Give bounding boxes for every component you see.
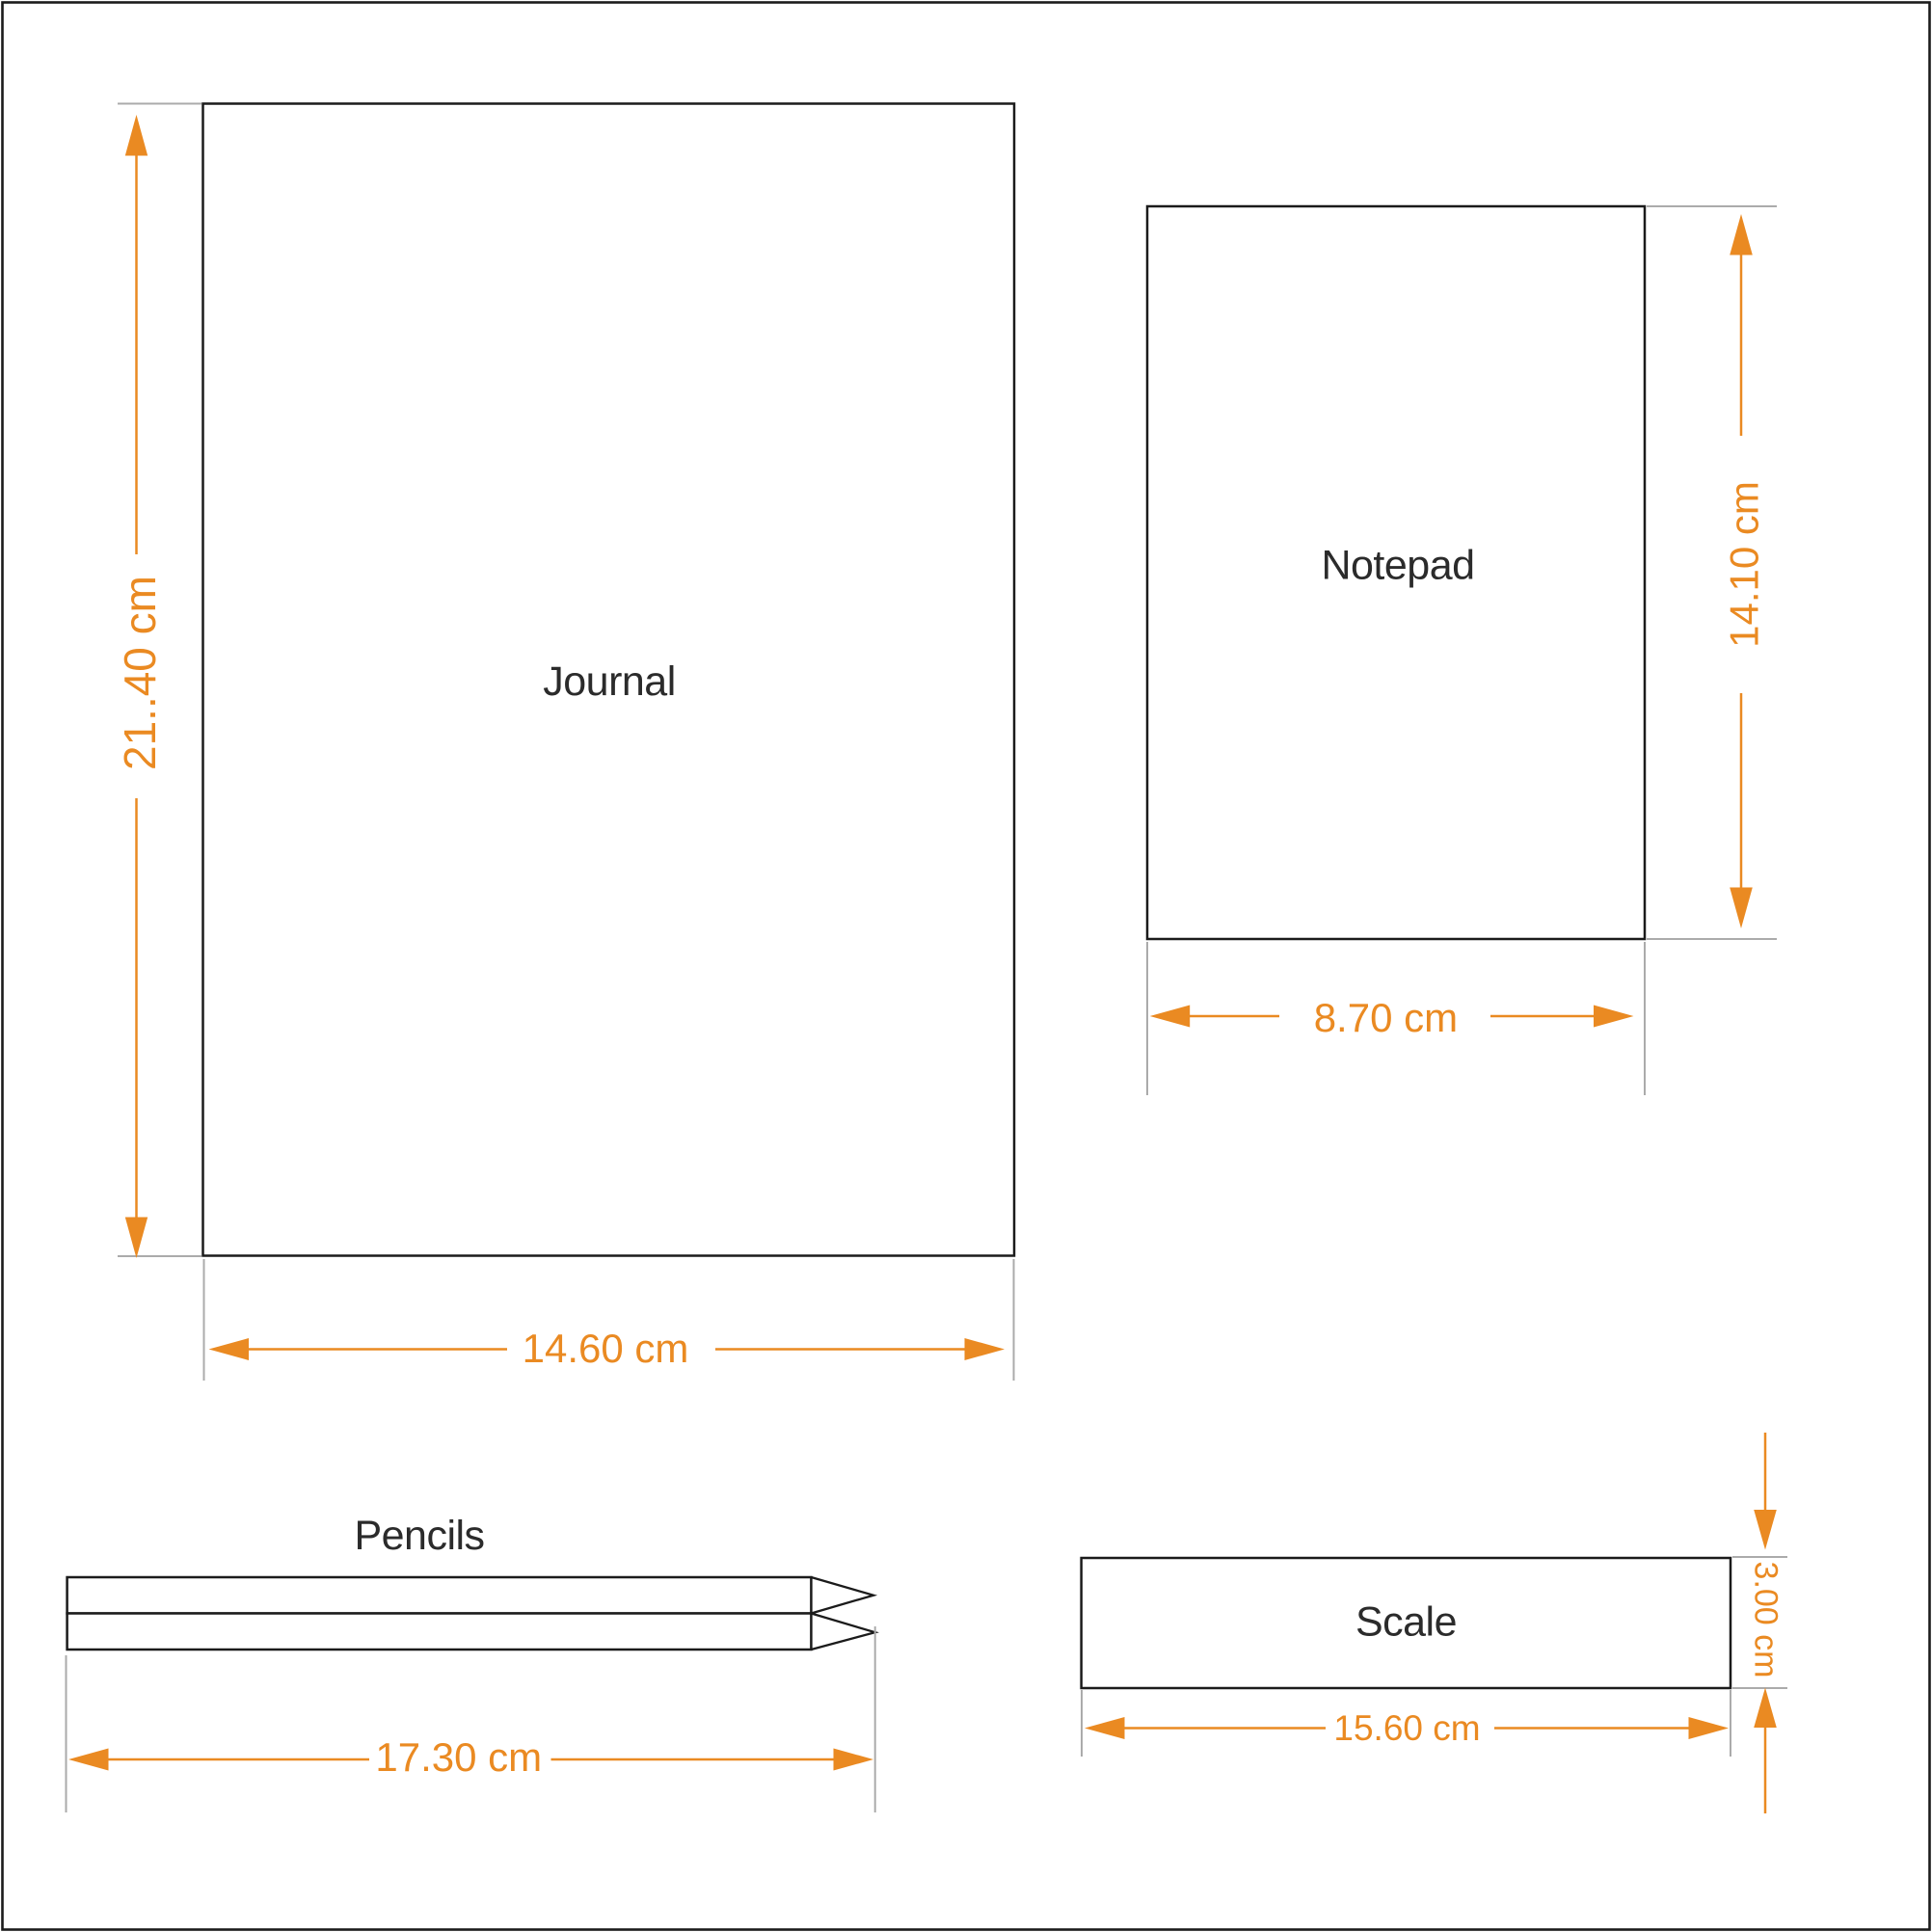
svg-text:Scale: Scale [1355, 1598, 1457, 1645]
svg-text:Journal: Journal [543, 658, 676, 705]
svg-text:14.10 cm: 14.10 cm [1722, 481, 1767, 648]
svg-text:15.60 cm: 15.60 cm [1333, 1708, 1480, 1748]
svg-text:Notepad: Notepad [1321, 543, 1474, 589]
svg-text:14.60 cm: 14.60 cm [523, 1326, 689, 1371]
svg-text:17.30 cm: 17.30 cm [375, 1734, 542, 1780]
svg-text:3.00 cm: 3.00 cm [1748, 1562, 1784, 1678]
svg-text:21..40 cm: 21..40 cm [115, 576, 165, 770]
svg-text:8.70 cm: 8.70 cm [1314, 995, 1458, 1040]
svg-text:Pencils: Pencils [354, 1513, 484, 1559]
